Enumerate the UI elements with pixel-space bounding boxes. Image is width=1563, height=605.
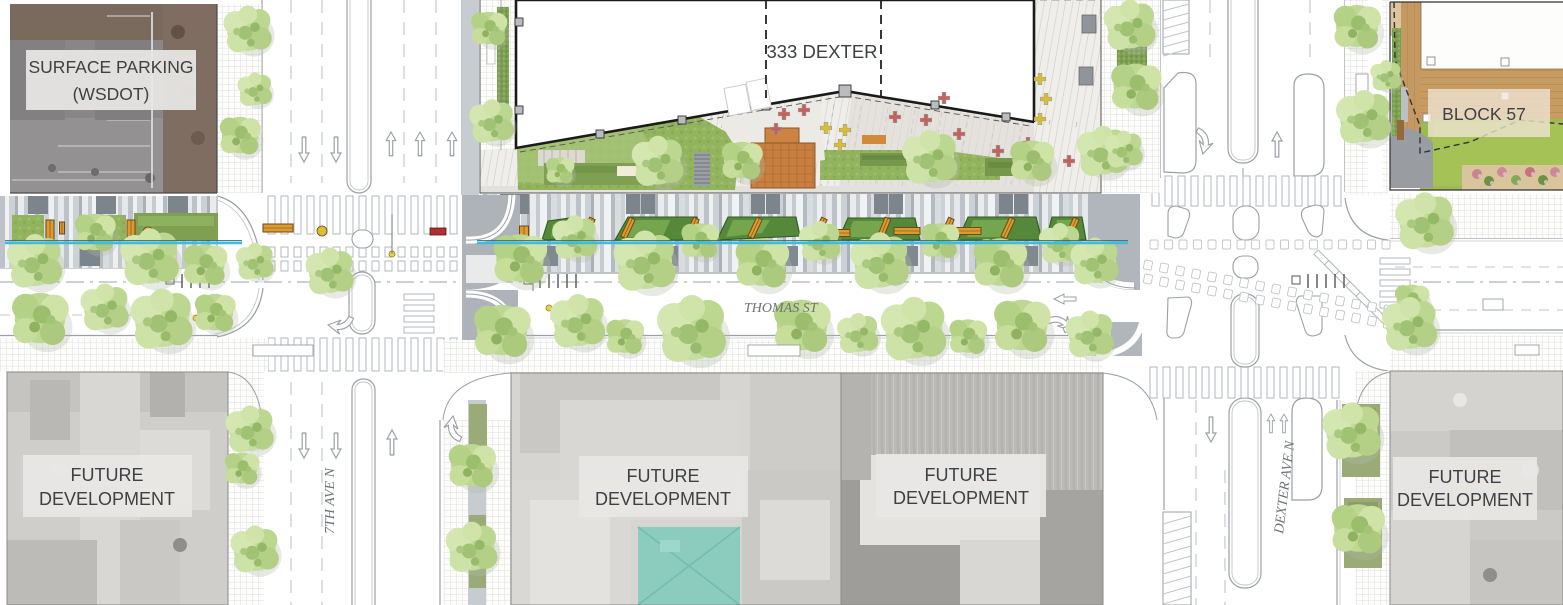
- svg-text:(WSDOT): (WSDOT): [73, 84, 150, 104]
- svg-text:7TH AVE N: 7TH AVE N: [323, 467, 338, 534]
- svg-text:FUTURE: FUTURE: [1429, 467, 1502, 487]
- svg-text:DEVELOPMENT: DEVELOPMENT: [893, 488, 1029, 508]
- svg-text:333 DEXTER: 333 DEXTER: [766, 41, 877, 62]
- svg-text:DEVELOPMENT: DEVELOPMENT: [1397, 490, 1533, 510]
- svg-text:FUTURE: FUTURE: [627, 466, 700, 486]
- svg-text:THOMAS ST: THOMAS ST: [744, 301, 819, 316]
- svg-text:DEVELOPMENT: DEVELOPMENT: [595, 489, 731, 509]
- svg-text:SURFACE PARKING: SURFACE PARKING: [29, 57, 194, 77]
- svg-text:BLOCK 57: BLOCK 57: [1442, 104, 1526, 124]
- svg-text:DEVELOPMENT: DEVELOPMENT: [39, 489, 175, 509]
- svg-text:FUTURE: FUTURE: [925, 465, 998, 485]
- svg-text:FUTURE: FUTURE: [71, 465, 144, 485]
